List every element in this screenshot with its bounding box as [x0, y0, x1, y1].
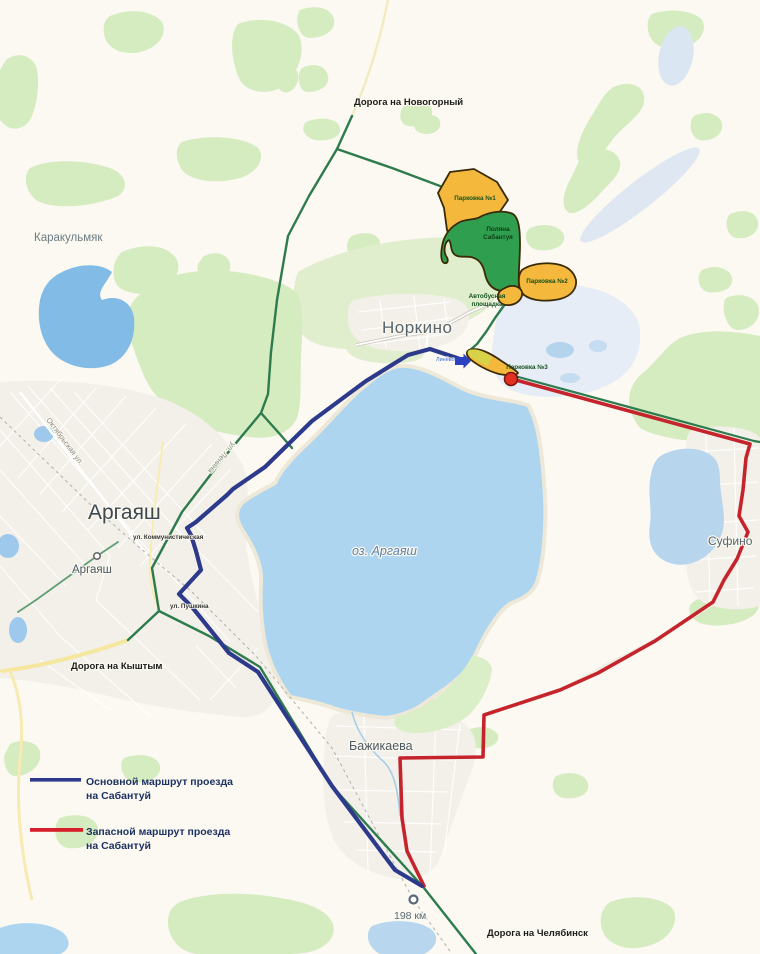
svg-text:Норкино: Норкино	[382, 318, 452, 337]
svg-text:ул. Пушкина: ул. Пушкина	[170, 603, 209, 610]
svg-text:Парковка №1: Парковка №1	[454, 195, 496, 202]
svg-text:на Сабантуй: на Сабантуй	[86, 790, 151, 802]
svg-text:Основной маршрут проезда: Основной маршрут проезда	[86, 776, 233, 788]
svg-text:Бажикаева: Бажикаева	[349, 739, 413, 753]
svg-text:Парковка №3: Парковка №3	[506, 364, 548, 371]
svg-text:площадка: площадка	[471, 301, 503, 308]
svg-text:Парковка №2: Парковка №2	[526, 278, 568, 285]
svg-text:на Сабантуй: на Сабантуй	[86, 840, 151, 852]
svg-text:Сабантуя: Сабантуя	[483, 233, 513, 241]
svg-text:Каракульмяк: Каракульмяк	[34, 232, 103, 244]
svg-text:Запасной маршрут проезда: Запасной маршрут проезда	[86, 826, 230, 838]
svg-text:оз. Аргаяш: оз. Аргаяш	[352, 544, 418, 558]
svg-text:ул. Коммунистическая: ул. Коммунистическая	[133, 534, 204, 541]
svg-text:Аргаяш: Аргаяш	[72, 564, 112, 576]
svg-text:Дорога на Новогорный: Дорога на Новогорный	[354, 97, 463, 108]
svg-text:Линёво: Линёво	[436, 357, 455, 363]
svg-text:Аргаяш: Аргаяш	[88, 501, 161, 524]
svg-text:Дорога на Кыштым: Дорога на Кыштым	[71, 661, 162, 672]
svg-text:Дорога на Челябинск: Дорога на Челябинск	[487, 928, 588, 939]
svg-text:198 км: 198 км	[394, 910, 426, 922]
svg-text:Суфино: Суфино	[708, 534, 753, 548]
svg-text:Автобусная: Автобусная	[469, 292, 506, 300]
svg-text:Поляна: Поляна	[486, 226, 510, 233]
